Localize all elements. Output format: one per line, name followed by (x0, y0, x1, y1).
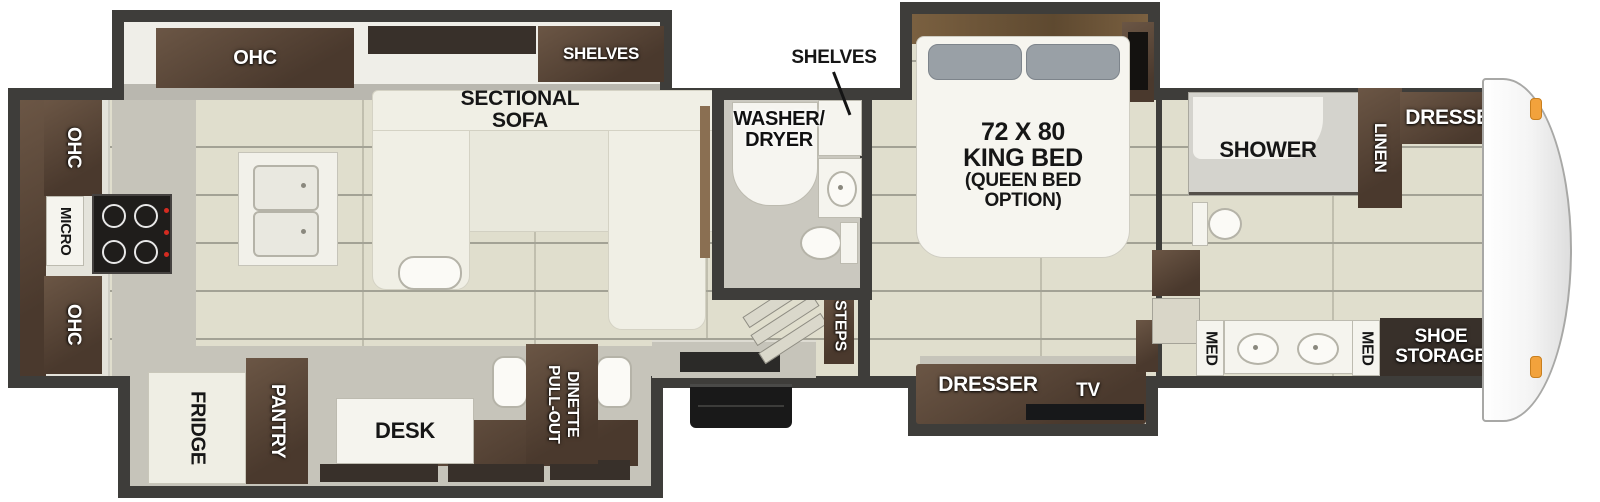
shelves-slide-label: SHELVES (538, 26, 664, 82)
bed-label-option1: (QUEEN BED (965, 171, 1081, 191)
mid-bath-sink (818, 158, 862, 218)
front-bath-step-lower (1152, 298, 1200, 344)
mid-bath-door (700, 106, 710, 258)
shoe-storage-line2: STORAGE (1395, 347, 1487, 367)
dinette-chair-right (596, 356, 632, 408)
dinette-label: PULL-OUT DINETTE (526, 344, 598, 464)
media-console (368, 26, 536, 54)
washer-dryer-label-line1: WASHER/ (733, 109, 824, 130)
linen-label: LINEN (1358, 88, 1402, 208)
front-bath-toilet-tank (1192, 202, 1208, 246)
front-bath-step-upper (1152, 250, 1200, 296)
ohc-lower-label: OHC (44, 276, 102, 374)
bed-pillow-left (928, 44, 1022, 80)
bedroom-window (1128, 32, 1148, 90)
microwave-label: MICRO (46, 196, 84, 266)
shelves-callout-label: SHELVES (782, 46, 886, 70)
dinette-chair-left (492, 356, 528, 408)
kitchen-rear-cabinet-run (20, 100, 46, 376)
shower-label: SHOWER (1198, 136, 1338, 164)
dinette-label-line2: DINETTE (563, 371, 580, 437)
front-cap (1482, 78, 1572, 422)
marker-light-top (1530, 98, 1542, 120)
tv-screen (1026, 404, 1144, 420)
bed-label-option2: OPTION) (984, 191, 1061, 211)
tv-label: TV (1058, 378, 1118, 404)
bed-label-type: KING BED (963, 145, 1083, 171)
ohc-upper-label: OHC (44, 100, 102, 196)
shoe-storage-line1: SHOE (1415, 327, 1468, 347)
marker-light-bottom (1530, 356, 1542, 378)
kitchen-island (238, 152, 338, 266)
front-bath-toilet-bowl (1208, 208, 1242, 240)
med-right-label: MED (1352, 320, 1380, 376)
mid-bath-toilet-bowl (800, 226, 842, 260)
dinette-label-line1: PULL-OUT (544, 365, 561, 443)
desk-label: DESK (336, 398, 474, 464)
bed-label-size: 72 X 80 (981, 119, 1065, 145)
sofa-label-line1: SECTIONAL (461, 88, 580, 110)
pantry-label: PANTRY (246, 358, 308, 484)
ohc-slide-label: OHC (156, 28, 354, 88)
stove-cooktop (92, 194, 172, 274)
slide-window-1 (320, 464, 438, 482)
bedroom-dresser-label: DRESSER (928, 370, 1048, 400)
bed-label: 72 X 80 KING BED (QUEEN BED OPTION) (918, 100, 1128, 230)
fridge-label: FRIDGE (148, 372, 246, 484)
mid-bath-toilet-tank (840, 222, 858, 264)
sofa-label: SECTIONAL SOFA (420, 86, 620, 134)
med-left-label: MED (1196, 320, 1224, 376)
sofa-chaise-right (608, 130, 706, 330)
washer-dryer-label-line2: DRYER (745, 130, 813, 151)
sofa-label-line2: SOFA (492, 110, 548, 132)
rv-floorplan: OHC MICRO OHC SECTIONAL SOFA OHC SHELVES… (0, 0, 1600, 502)
desk-chair (398, 256, 462, 290)
slide-window-2 (448, 464, 544, 482)
washer-dryer-label: WASHER/ DRYER (714, 104, 844, 156)
vanity (1224, 320, 1356, 374)
entry-steps (690, 384, 792, 428)
bed-pillow-right (1026, 44, 1120, 80)
